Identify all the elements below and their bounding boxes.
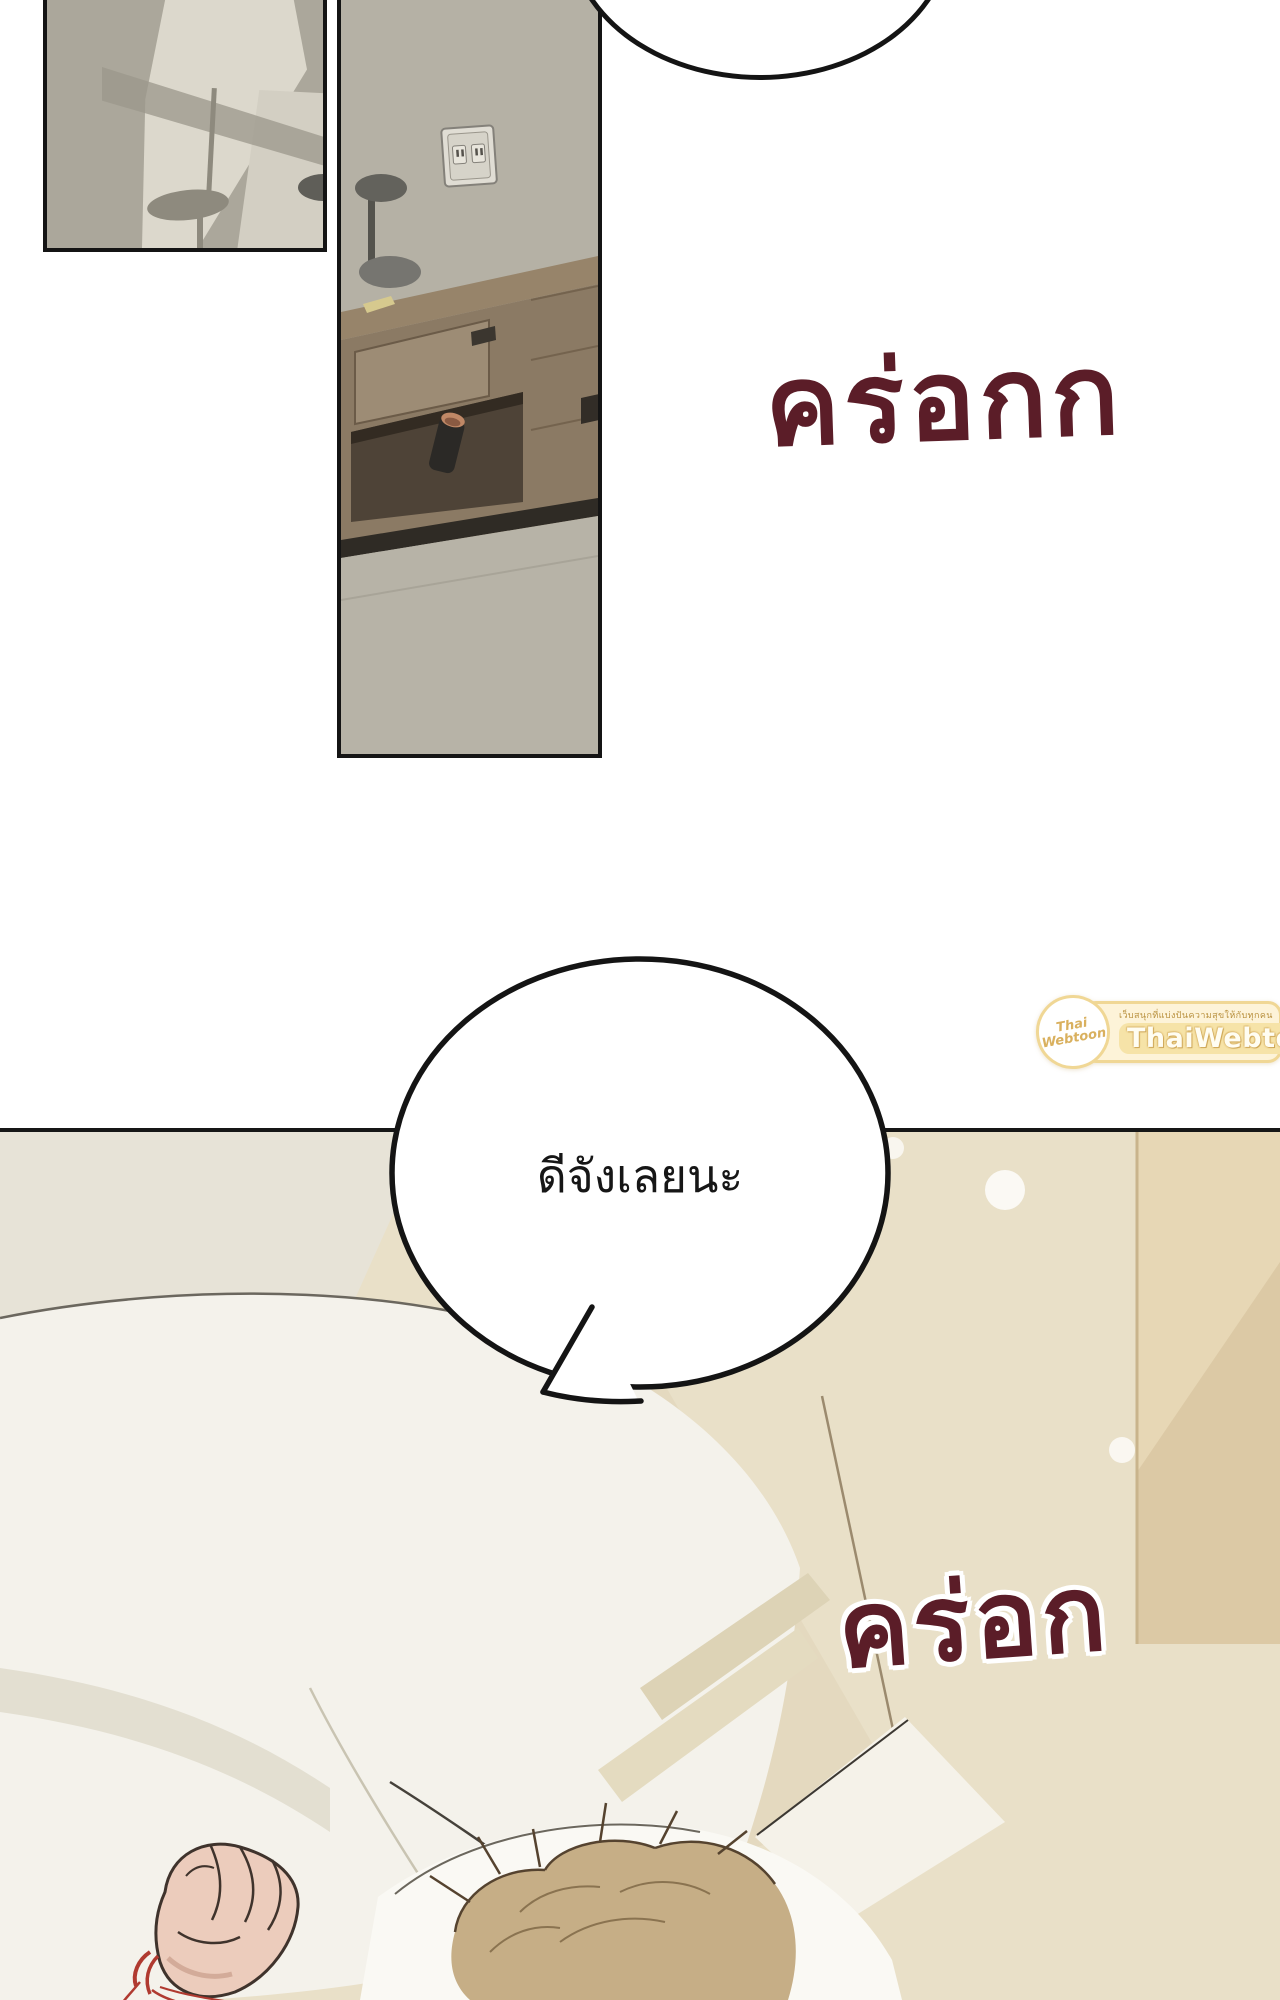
watermark-tagline: เว็บสนุกที่แบ่งปันความสุขให้กับทุกคน	[1119, 1008, 1269, 1022]
webtoon-page: คร่อกก	[0, 0, 1280, 2000]
side-knob	[581, 394, 598, 424]
panel-wall-light	[43, 0, 327, 252]
watermark-brand: ThaiWebtoon	[1119, 1023, 1280, 1054]
speech-bubble-text: ดีจังเลยนะ	[450, 1150, 830, 1203]
sparkle	[985, 1170, 1025, 1210]
lamp-disc-upper	[355, 174, 407, 202]
nightstand-scene	[341, 0, 598, 750]
lamp-stem-shadow	[197, 216, 203, 250]
watermark-banner: Thai Webtoon เว็บสนุกที่แบ่งปันความสุขให…	[1036, 995, 1280, 1069]
lamp-disc-lower	[359, 256, 421, 288]
sfx-bottom-text: คร่อก	[835, 1563, 1113, 1682]
panel-nightstand	[337, 0, 602, 758]
wall-outlet-icon	[441, 125, 497, 186]
sparkle	[1109, 1437, 1135, 1463]
watermark-band: เว็บสนุกที่แบ่งปันความสุขให้กับทุกคน Tha…	[1082, 1001, 1280, 1063]
sfx-top-text: คร่อกก	[763, 342, 1124, 461]
watermark-logo-bottom: Webtoon	[1041, 1026, 1107, 1050]
top-speech-bubble-arc	[568, 0, 952, 80]
lamp-pole	[368, 196, 375, 262]
